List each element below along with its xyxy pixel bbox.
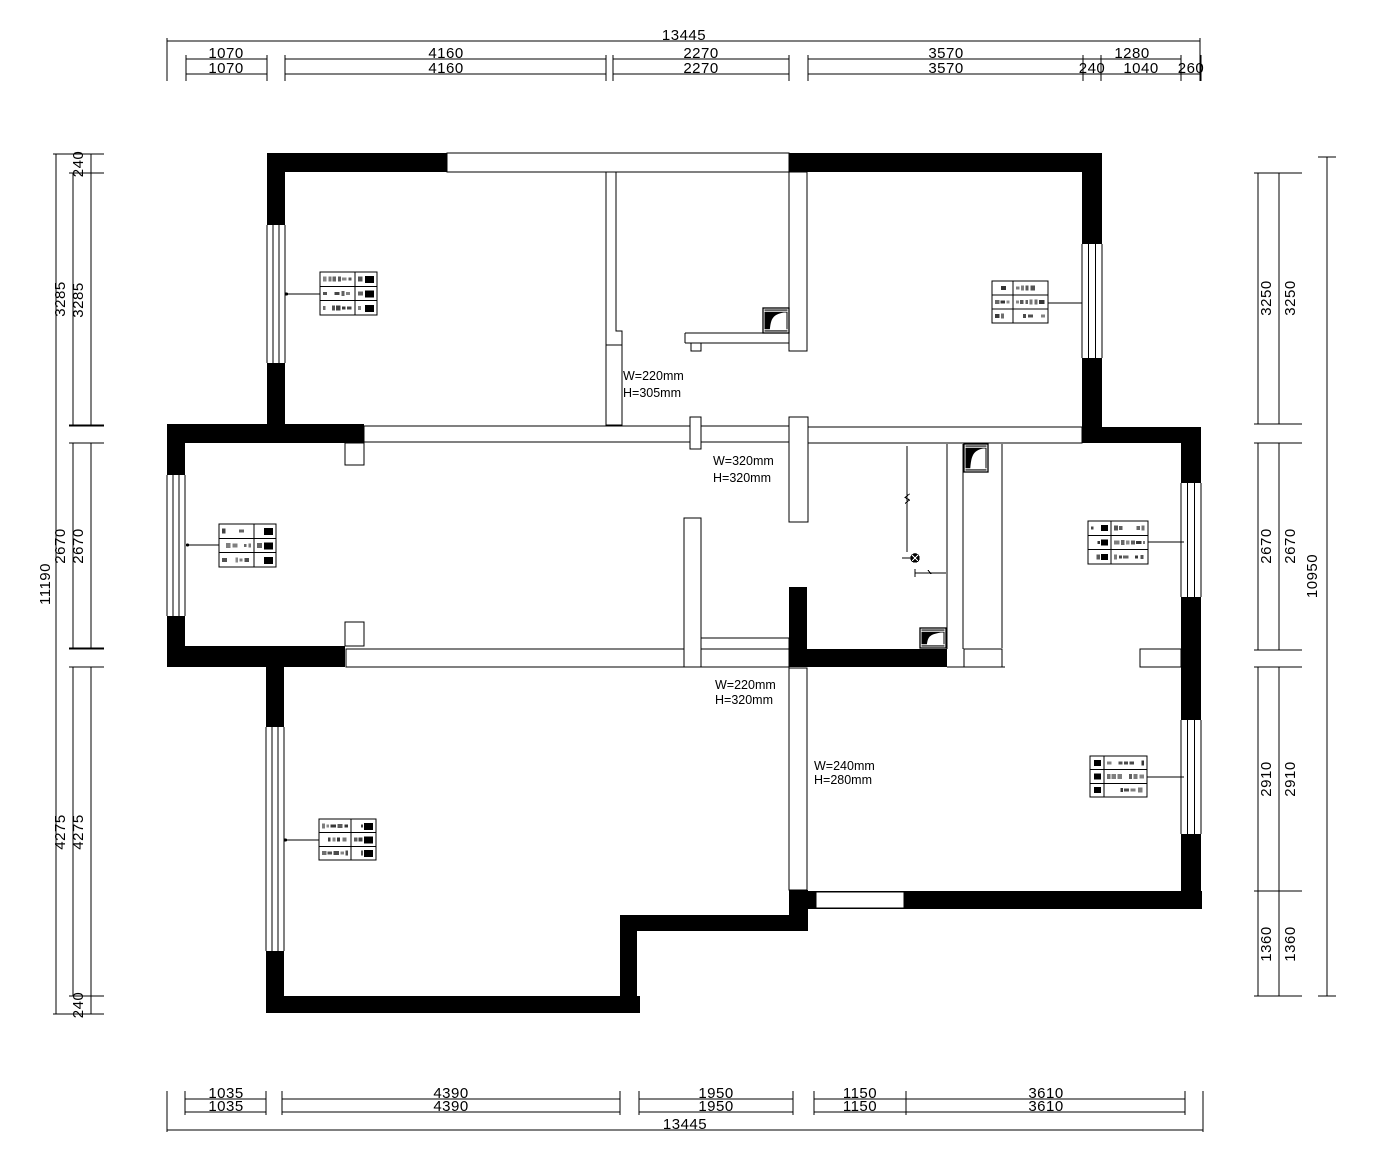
svg-text:13445: 13445 bbox=[663, 1116, 707, 1133]
svg-text:1360: 1360 bbox=[1282, 926, 1299, 961]
svg-text:1150: 1150 bbox=[843, 1098, 877, 1115]
svg-text:H=320mm: H=320mm bbox=[713, 471, 771, 485]
svg-text:13445: 13445 bbox=[662, 27, 706, 44]
svg-text:4160: 4160 bbox=[428, 60, 463, 77]
svg-text:1035: 1035 bbox=[208, 1098, 243, 1115]
svg-text:260: 260 bbox=[1178, 60, 1205, 77]
svg-text:W=220mm: W=220mm bbox=[715, 678, 776, 692]
svg-text:3570: 3570 bbox=[928, 60, 963, 77]
svg-text:H=280mm: H=280mm bbox=[814, 773, 872, 787]
svg-text:2670: 2670 bbox=[1258, 528, 1275, 563]
svg-text:1360: 1360 bbox=[1258, 926, 1275, 961]
svg-text:W=240mm: W=240mm bbox=[814, 759, 875, 773]
svg-text:W=320mm: W=320mm bbox=[713, 454, 774, 468]
svg-text:4390: 4390 bbox=[433, 1098, 468, 1115]
svg-text:11190: 11190 bbox=[37, 563, 54, 605]
svg-text:4275: 4275 bbox=[70, 814, 87, 849]
svg-text:3285: 3285 bbox=[70, 282, 87, 317]
svg-text:1950: 1950 bbox=[698, 1098, 733, 1115]
svg-text:2670: 2670 bbox=[1282, 528, 1299, 563]
svg-text:2910: 2910 bbox=[1282, 761, 1299, 796]
svg-text:3285: 3285 bbox=[52, 281, 69, 316]
svg-text:2670: 2670 bbox=[52, 528, 69, 563]
svg-text:2910: 2910 bbox=[1258, 761, 1275, 796]
svg-text:4275: 4275 bbox=[52, 814, 69, 849]
svg-text:1070: 1070 bbox=[208, 60, 243, 77]
svg-text:H=320mm: H=320mm bbox=[715, 693, 773, 707]
svg-text:W=220mm: W=220mm bbox=[623, 369, 684, 383]
svg-text:2670: 2670 bbox=[70, 528, 87, 563]
svg-text:3610: 3610 bbox=[1028, 1098, 1063, 1115]
svg-text:3250: 3250 bbox=[1282, 280, 1299, 315]
svg-text:3250: 3250 bbox=[1258, 280, 1275, 315]
svg-text:2270: 2270 bbox=[683, 60, 718, 77]
svg-text:1040: 1040 bbox=[1123, 60, 1158, 77]
svg-text:10950: 10950 bbox=[1304, 554, 1321, 598]
svg-text:H=305mm: H=305mm bbox=[623, 386, 681, 400]
